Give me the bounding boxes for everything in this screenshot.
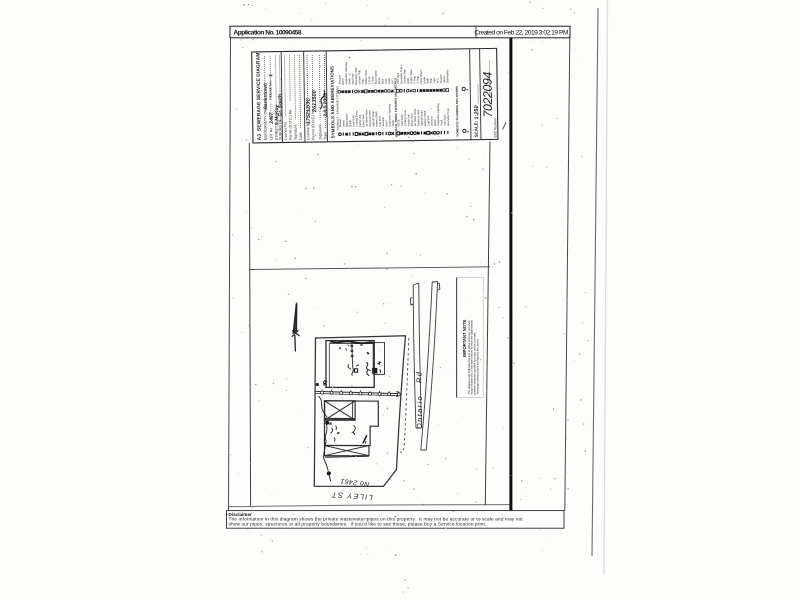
svg-text:Gr. South: Gr. South [277,94,283,117]
svg-text:Rd: Rd [415,371,424,383]
svg-text:Dishwasher: Dishwasher [445,69,449,83]
svg-text:Ontario: Ontario [415,395,424,429]
svg-text:Date: Date [299,132,303,140]
svg-text:Sewerage service plans are kep: Sewerage service plans are kept by the o… [476,339,480,395]
svg-text:2613500: 2613500 [312,89,318,113]
svg-text:SUBURB OF: SUBURB OF [278,118,282,140]
svg-text:SSD Number: SSD Number [493,117,497,138]
svg-text:DOMESTIC PLUMBING NOT SHOWN: DOMESTIC PLUMBING NOT SHOWN [455,86,460,136]
svg-text:1:250: 1:250 [474,104,480,119]
svg-text:Signature: Signature [318,124,322,139]
svg-text:Permit (D.O.C.) No.: Permit (D.O.C.) No. [288,109,292,140]
svg-text:Created on Feb 22, 2019 3:02:1: Created on Feb 22, 2019 3:02:19 PM [474,29,568,36]
svg-text:Date: Date [323,132,327,140]
svg-text:SCALE:: SCALE: [473,120,478,137]
svg-text:MUNICIPALITY OF: MUNICIPALITY OF [263,109,267,141]
svg-text:1: 1 [268,74,274,77]
svg-text:IMPORTANT NOTE: IMPORTANT NOTE [462,319,467,357]
svg-text:LOT No.: LOT No. [269,127,273,141]
svg-text:3.8.5.2003: 3.8.5.2003 [323,93,329,117]
svg-text:Boundary Trap: Boundary Trap [446,108,450,126]
svg-text:Application No. 10090458: Application No. 10090458 [234,30,302,37]
svg-text:Licence No.: Licence No. [283,121,287,140]
svg-text:Signature: Signature [294,124,298,139]
svg-text:show our pipes, structures or: show our pipes, structures or all proper… [229,521,487,526]
svg-text:7022094: 7022094 [480,71,495,117]
svg-text:175212/3C: 175212/3C [306,98,312,125]
